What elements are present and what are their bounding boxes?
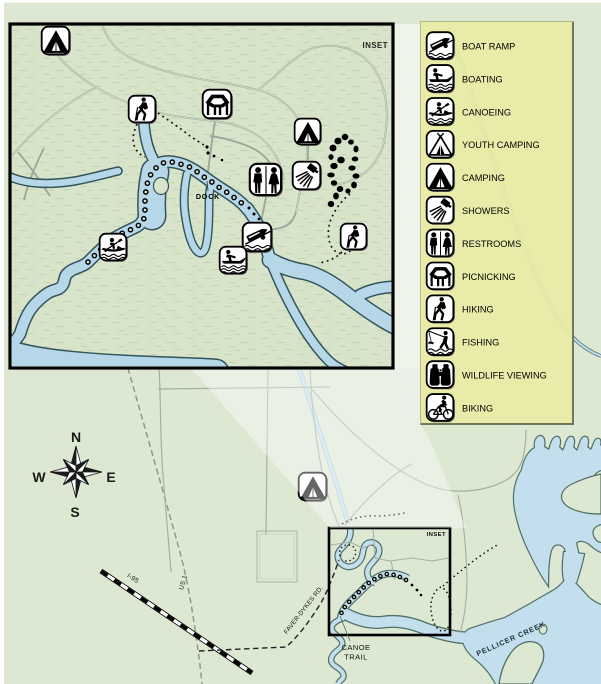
svg-text:BOATING: BOATING [462, 74, 503, 84]
svg-text:INSET: INSET [363, 41, 388, 50]
svg-text:W: W [32, 469, 46, 485]
svg-text:CANOE: CANOE [341, 643, 370, 652]
svg-text:CANOEING: CANOEING [462, 107, 511, 117]
svg-text:DOCK: DOCK [196, 192, 220, 201]
svg-text:FISHING: FISHING [462, 338, 499, 348]
svg-text:PICNICKING: PICNICKING [462, 272, 516, 282]
svg-text:SHOWERS: SHOWERS [462, 206, 509, 216]
svg-text:E: E [106, 469, 115, 485]
svg-text:WILDLIFE VIEWING: WILDLIFE VIEWING [462, 371, 547, 381]
svg-text:BOAT RAMP: BOAT RAMP [462, 42, 515, 52]
svg-text:YOUTH CAMPING: YOUTH CAMPING [462, 140, 540, 150]
svg-text:TRAIL: TRAIL [344, 653, 368, 662]
svg-text:HIKING: HIKING [462, 305, 494, 315]
svg-text:N: N [71, 429, 81, 445]
svg-text:INSET: INSET [427, 532, 446, 538]
svg-text:RESTROOMS: RESTROOMS [462, 239, 521, 249]
svg-text:CAMPING: CAMPING [462, 173, 505, 183]
svg-text:BIKING: BIKING [462, 403, 493, 413]
svg-text:S: S [70, 504, 79, 520]
